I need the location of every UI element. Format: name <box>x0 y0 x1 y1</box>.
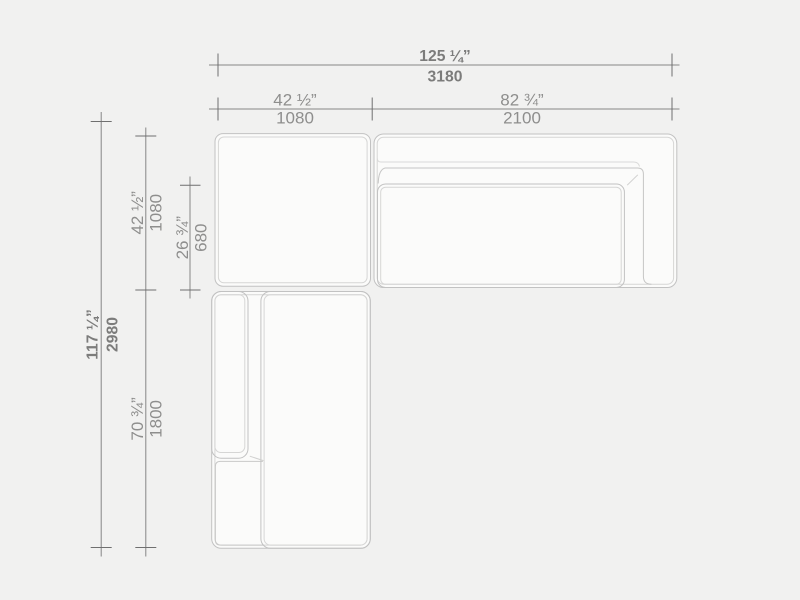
svg-text:1080: 1080 <box>276 109 314 128</box>
svg-text:2980: 2980 <box>105 317 122 352</box>
svg-text:1800: 1800 <box>147 400 166 438</box>
svg-text:42 ½”: 42 ½” <box>128 191 147 235</box>
svg-text:125 ¼”: 125 ¼” <box>419 48 470 65</box>
svg-text:117 ¼”: 117 ¼” <box>85 309 102 360</box>
svg-text:3180: 3180 <box>428 69 463 86</box>
svg-text:42 ½”: 42 ½” <box>273 91 317 110</box>
svg-text:82 ¾”: 82 ¾” <box>500 91 544 110</box>
svg-text:26 ¾”: 26 ¾” <box>173 216 192 260</box>
svg-text:680: 680 <box>192 224 211 252</box>
svg-text:2100: 2100 <box>503 109 541 128</box>
svg-text:1080: 1080 <box>147 194 166 232</box>
svg-text:70 ¾”: 70 ¾” <box>128 397 147 441</box>
